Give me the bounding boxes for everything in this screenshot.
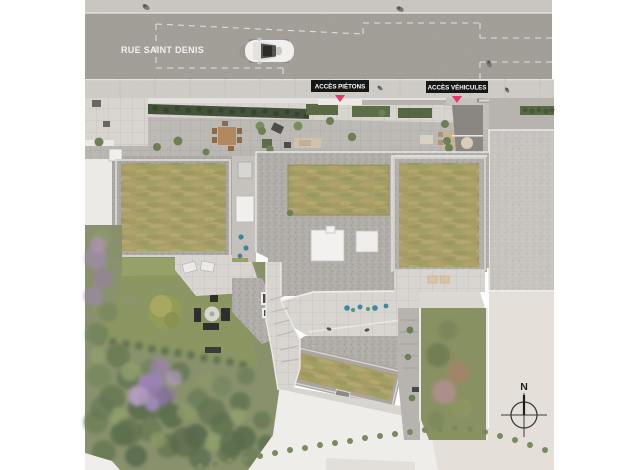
svg-text:N: N [520,381,528,393]
svg-text:ACCÈS PIÉTONS: ACCÈS PIÉTONS [315,83,365,91]
svg-text:RUE SAINT DENIS: RUE SAINT DENIS [121,45,204,55]
svg-text:ACCÈS VÉHICULES: ACCÈS VÉHICULES [428,84,487,92]
